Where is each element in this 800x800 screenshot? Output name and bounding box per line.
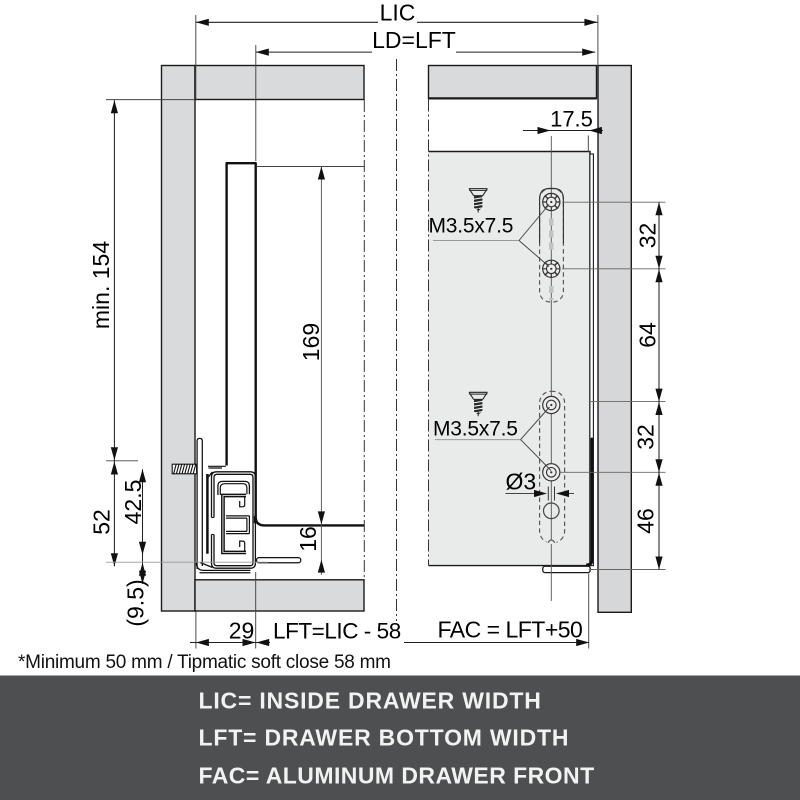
svg-text:FAC = LFT+50: FAC = LFT+50 (438, 617, 583, 643)
svg-text:FAC= ALUMINUM DRAWER FRONT: FAC= ALUMINUM DRAWER FRONT (199, 763, 595, 789)
svg-text:M3.5x7.5: M3.5x7.5 (429, 215, 514, 238)
svg-text:29: 29 (229, 618, 255, 644)
svg-text:LD=LFT: LD=LFT (372, 27, 456, 53)
svg-text:Ø3: Ø3 (506, 469, 537, 495)
svg-text:LFT= DRAWER BOTTOM WIDTH: LFT= DRAWER BOTTOM WIDTH (199, 725, 570, 751)
svg-text:32: 32 (633, 424, 659, 450)
svg-text:LFT=LIC - 58: LFT=LIC - 58 (273, 619, 401, 644)
svg-text:32: 32 (635, 223, 661, 249)
svg-text:64: 64 (635, 322, 661, 348)
svg-text:46: 46 (633, 508, 659, 534)
svg-text:LIC: LIC (380, 0, 416, 25)
svg-text:169: 169 (298, 323, 324, 361)
svg-text:M3.5x7.5: M3.5x7.5 (433, 418, 518, 441)
svg-text:*Minimum 50 mm / Tipmatic soft: *Minimum 50 mm / Tipmatic soft close 58 … (18, 652, 391, 673)
svg-text:17.5: 17.5 (550, 107, 593, 132)
svg-text:52: 52 (89, 509, 115, 535)
svg-text:LIC= INSIDE DRAWER WIDTH: LIC= INSIDE DRAWER WIDTH (199, 688, 542, 714)
svg-text:42.5: 42.5 (120, 480, 146, 525)
svg-text:min. 154: min. 154 (88, 241, 114, 329)
svg-text:16: 16 (295, 526, 321, 552)
svg-text:(9.5): (9.5) (123, 579, 149, 626)
